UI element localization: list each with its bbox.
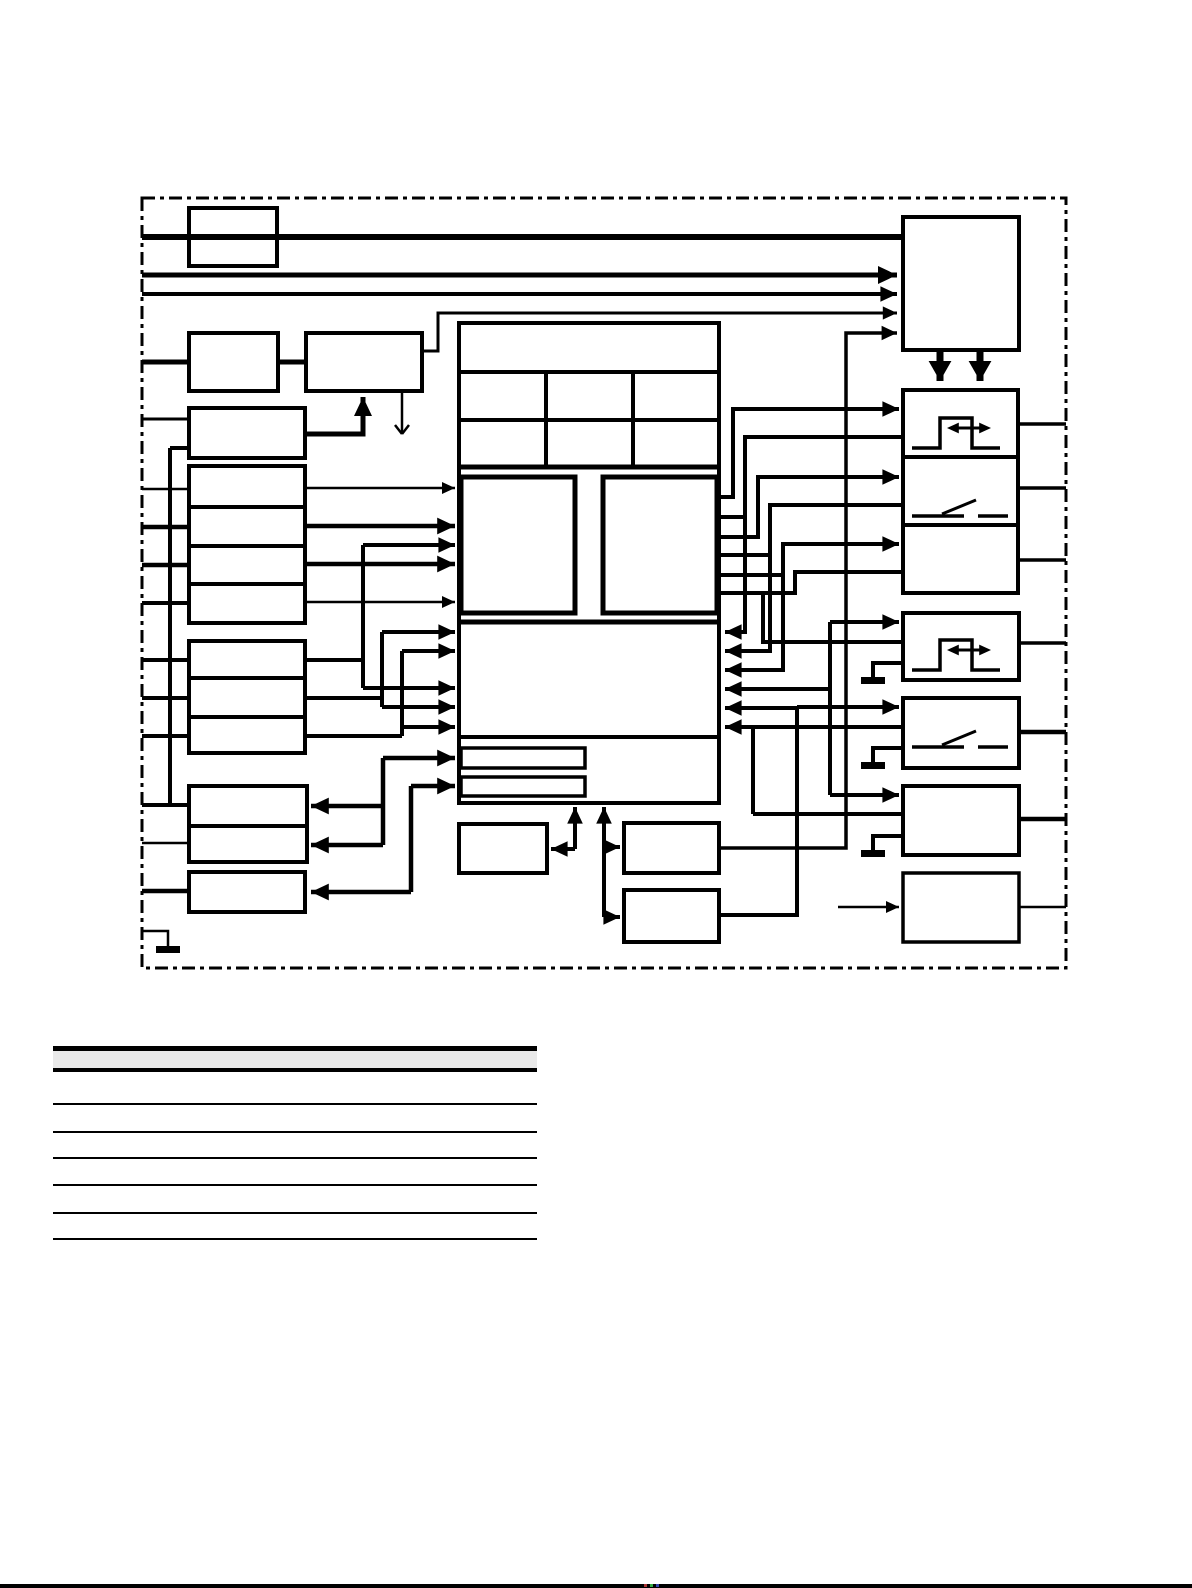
table-row-line	[53, 1131, 537, 1133]
central-inner-left	[461, 477, 575, 613]
arrowhead-icon	[603, 909, 620, 925]
ground-icon	[861, 677, 885, 684]
arrowhead-icon	[969, 361, 992, 381]
arrowhead-icon	[442, 596, 455, 608]
arrowhead-icon	[438, 537, 455, 553]
arrowhead-icon	[567, 807, 583, 824]
arrowhead-icon	[882, 787, 899, 803]
ground-lead	[873, 836, 903, 850]
arrowhead-icon	[725, 643, 742, 659]
right-block-6	[903, 786, 1019, 855]
pulse-width-icon	[912, 640, 1000, 670]
right-stack	[903, 390, 1018, 593]
arrowhead-icon	[437, 556, 455, 573]
central-register-1	[461, 748, 585, 768]
bottom-block-3	[624, 890, 719, 942]
arrowhead-icon	[882, 469, 899, 485]
arrowhead-icon	[437, 750, 455, 767]
ground-lead	[873, 663, 903, 677]
wire	[422, 313, 897, 351]
bottom-block-2	[624, 823, 719, 873]
arrowhead-icon	[354, 397, 372, 416]
arrowhead-icon	[725, 681, 742, 697]
right-block-5	[903, 698, 1019, 768]
table-row-line	[53, 1157, 537, 1159]
arrowhead-icon	[725, 700, 742, 716]
arrowhead-icon	[947, 423, 959, 434]
arrowhead-icon	[882, 536, 899, 552]
left-block-3	[189, 408, 305, 458]
left-block-2a	[189, 333, 278, 391]
arrowhead-icon	[596, 807, 612, 824]
table-row-line	[53, 1212, 537, 1214]
footer-logo-fragment	[644, 1584, 647, 1587]
arrowhead-icon	[311, 798, 329, 815]
arrowhead-icon	[551, 841, 568, 857]
central-inner-right	[603, 477, 717, 613]
arrowhead-icon	[438, 699, 455, 715]
footer-bar	[0, 1584, 1192, 1588]
arrowhead-icon	[725, 662, 742, 678]
arrowhead-icon	[725, 719, 742, 735]
arrowhead-icon	[311, 837, 329, 854]
switch-icon	[942, 731, 976, 745]
ground-lead	[873, 748, 903, 762]
left-group-2	[189, 641, 305, 753]
blank-parameter-table	[53, 1046, 537, 1242]
arrowhead-icon	[437, 778, 455, 795]
ground-icon	[861, 762, 885, 769]
arrowhead-icon	[438, 680, 455, 696]
arrowhead-icon	[311, 884, 329, 901]
footer-logo-fragment	[656, 1584, 659, 1587]
arrowhead-icon	[882, 326, 897, 340]
right-block-7	[903, 873, 1019, 942]
top-right-block	[903, 217, 1019, 350]
arrowhead-icon	[979, 645, 991, 656]
switch-icon	[942, 500, 976, 514]
arrowhead-icon	[438, 643, 455, 659]
wire	[142, 931, 168, 946]
arrowhead-icon	[886, 901, 899, 913]
arrowhead-icon	[878, 266, 897, 284]
ground-icon	[861, 850, 885, 857]
block-diagram	[0, 0, 1192, 1588]
ground-icon	[156, 946, 180, 953]
arrowhead-icon	[883, 306, 897, 319]
table-row-line	[53, 1103, 537, 1105]
table-row-line	[53, 1184, 537, 1186]
table-row-line	[53, 1238, 537, 1240]
arrowhead-icon	[979, 423, 991, 434]
arrowhead-icon	[882, 401, 899, 417]
left-block-2b	[306, 333, 422, 391]
arrowhead-icon	[929, 361, 952, 381]
page	[0, 0, 1192, 1588]
arrowhead-icon	[947, 645, 959, 656]
arrowhead-icon	[603, 839, 620, 855]
central-block	[459, 323, 719, 803]
table-header	[53, 1046, 537, 1072]
arrowhead-icon	[882, 614, 899, 630]
wire	[725, 575, 783, 670]
central-register-2	[461, 777, 585, 796]
pulse-width-icon	[912, 418, 1000, 448]
arrowhead-icon	[437, 518, 455, 535]
footer-logo-fragment	[650, 1584, 653, 1587]
arrowhead-icon	[882, 699, 899, 715]
arrowhead-icon	[438, 719, 455, 735]
arrowhead-icon	[438, 624, 455, 640]
bottom-block-1	[459, 824, 547, 873]
arrowhead-icon	[725, 624, 742, 640]
bottom-left-block	[189, 872, 305, 912]
wire	[719, 708, 797, 915]
arrowhead-icon	[442, 482, 455, 494]
arrowhead-icon	[880, 286, 897, 302]
